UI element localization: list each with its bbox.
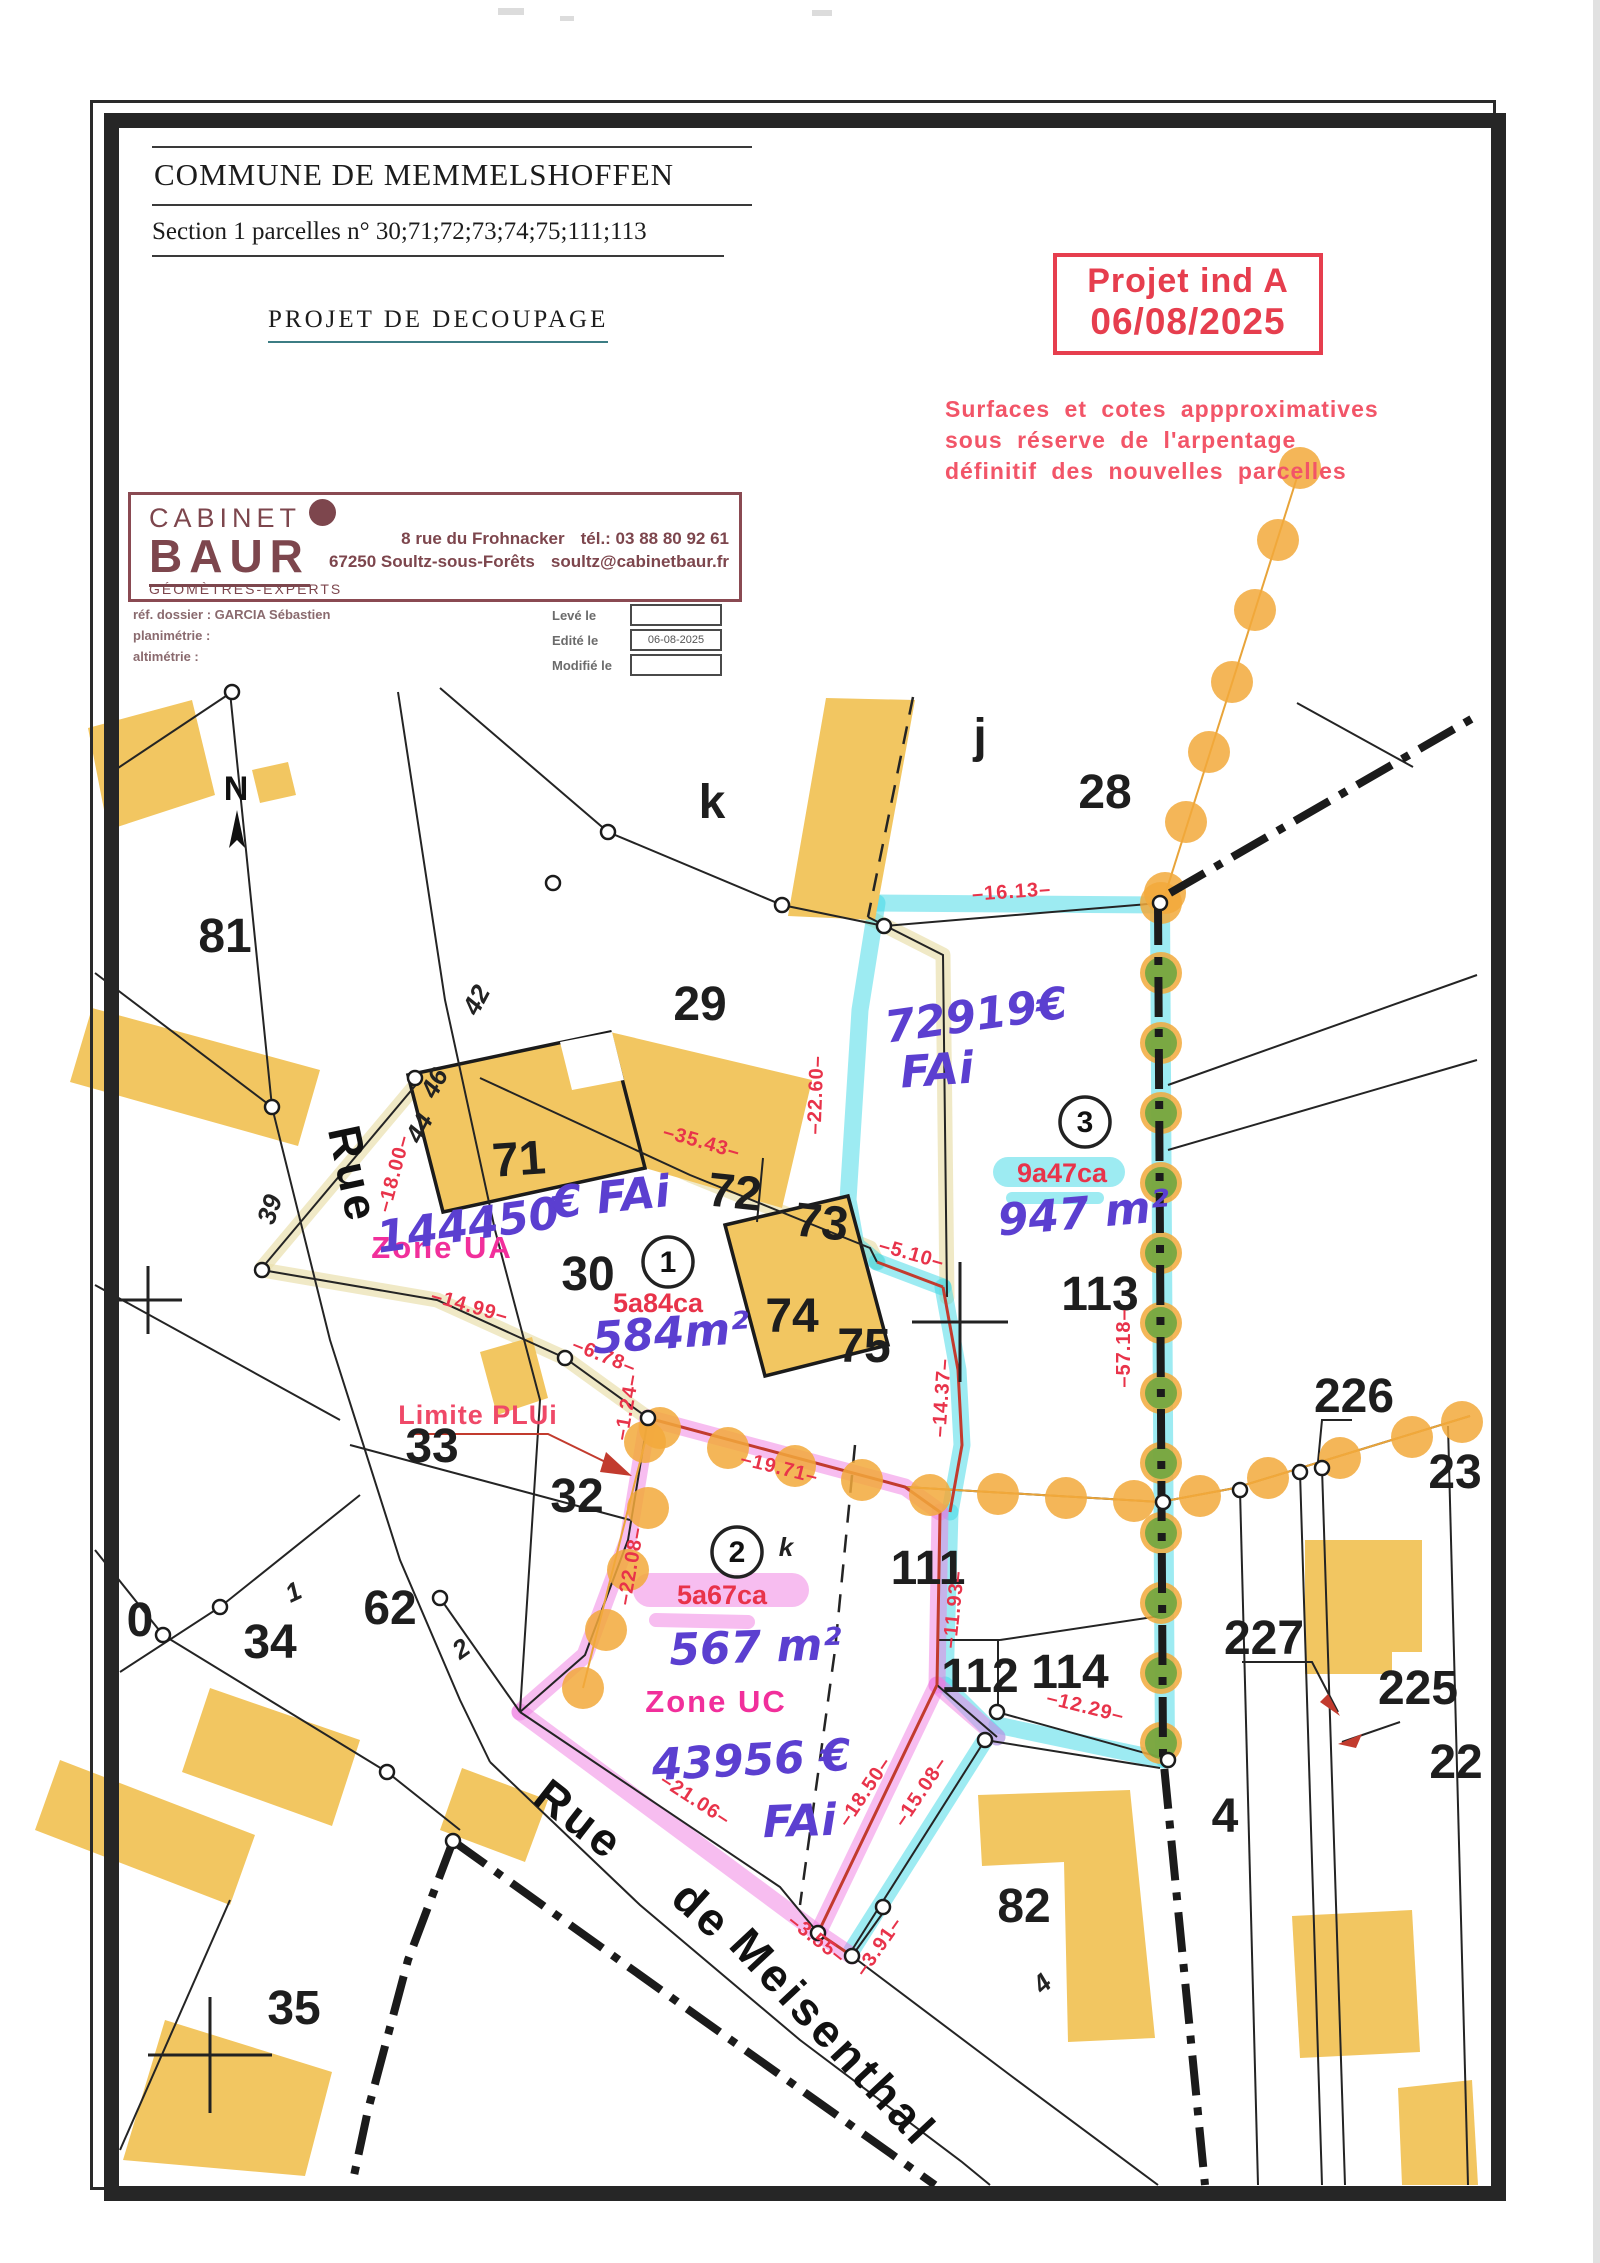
surveyor-firm-block: CABINET BAUR GÉOMÈTRES-EXPERTS 8 rue du … xyxy=(128,492,742,602)
firm-address-2: 67250 Soultz-sous-Forêts xyxy=(329,552,535,571)
survey-point-icon xyxy=(775,898,789,912)
street-label-2: de xyxy=(662,1870,743,1950)
orange-boundary-dot xyxy=(562,1667,604,1709)
parcel-label-227: 227 xyxy=(1224,1612,1304,1665)
limite-plui-label: Limite PLUi xyxy=(398,1400,558,1430)
parcel-label-74: 74 xyxy=(765,1290,819,1343)
parcel-label-4: 4 xyxy=(1212,1790,1239,1843)
survey-point-icon xyxy=(601,825,615,839)
parcel-label-81: 81 xyxy=(198,910,251,963)
orange-boundary-dot xyxy=(1441,1401,1483,1443)
survey-point-icon xyxy=(156,1628,170,1642)
orange-boundary-dot xyxy=(1211,661,1253,703)
stamp-project-label: Projet ind A xyxy=(1057,262,1319,301)
orange-boundary-dot xyxy=(1179,1475,1221,1517)
survey-point-icon xyxy=(1153,896,1167,910)
firm-logo-dot-icon xyxy=(309,499,336,526)
leve-le-label: Levé le xyxy=(552,608,630,623)
dimension-label-9: –57.18– xyxy=(1113,1308,1135,1387)
parcel-label-28: 28 xyxy=(1078,766,1131,819)
survey-point-icon xyxy=(978,1733,992,1747)
survey-point-icon xyxy=(1161,1753,1175,1767)
survey-point-icon xyxy=(1156,1495,1170,1509)
handwriting-note-3: FAi xyxy=(899,1042,977,1098)
lot-number-1: 1 xyxy=(660,1246,677,1279)
survey-point-icon xyxy=(446,1834,460,1848)
handwriting-note-7: 43956 € xyxy=(650,1730,853,1791)
handwriting-note-2: 72919€ xyxy=(881,978,1070,1054)
survey-point-icon xyxy=(877,919,891,933)
house-number-7: k xyxy=(779,1532,795,1562)
survey-point-icon xyxy=(255,1263,269,1277)
commune-title: COMMUNE DE MEMMELSHOFFEN xyxy=(152,146,752,206)
parcel-label-226: 226 xyxy=(1314,1370,1394,1423)
survey-point-icon xyxy=(1233,1483,1247,1497)
project-title: PROJET DE DECOUPAGE xyxy=(268,306,608,343)
parcel-label-225: 225 xyxy=(1378,1662,1458,1715)
modifie-le-value xyxy=(630,654,722,676)
north-label: N xyxy=(224,770,249,808)
orange-boundary-dot xyxy=(1247,1457,1289,1499)
handwriting-note-5: 584m² xyxy=(591,1303,751,1365)
survey-point-icon xyxy=(546,876,560,890)
parcel-label-71: 71 xyxy=(490,1131,547,1188)
lot-number-badge-1: 1 xyxy=(643,1237,693,1287)
parcel-label-30: 30 xyxy=(561,1248,614,1301)
orange-boundary-dot xyxy=(977,1473,1019,1515)
altimetrie: altimétrie : xyxy=(133,646,330,667)
survey-point-icon xyxy=(876,1900,890,1914)
lot-number-badge-3: 3 xyxy=(1060,1097,1110,1147)
parcel-label-82: 82 xyxy=(997,1880,1050,1933)
planimetrie: planimétrie : xyxy=(133,625,330,646)
house-number-6: 4 xyxy=(1026,1967,1058,2000)
parcel-label-72: 72 xyxy=(705,1163,764,1221)
section-parcelles-subtitle: Section 1 parcelles n° 30;71;72;73;74;75… xyxy=(152,218,724,257)
disclaimer-text: Surfaces et cotes appproximatives sous r… xyxy=(945,394,1379,487)
disclaimer-line-1: Surfaces et cotes appproximatives xyxy=(945,394,1379,425)
handwriting-note-4: 947 m² xyxy=(996,1181,1172,1247)
orange-boundary-dot xyxy=(585,1609,627,1651)
file-info-dates: Levé le Edité le06-08-2025 Modifié le xyxy=(552,604,722,679)
parcel-label-29: 29 xyxy=(673,978,726,1031)
orange-boundary-dot xyxy=(1257,519,1299,561)
parcel-label-75: 75 xyxy=(837,1320,890,1373)
survey-point-icon xyxy=(1315,1461,1329,1475)
survey-point-icon xyxy=(225,685,239,699)
parcel-label-112: 112 xyxy=(941,1650,1018,1703)
survey-point-icon xyxy=(990,1705,1004,1719)
handwriting-note-6: 567 m² xyxy=(669,1619,843,1676)
ref-dossier: réf. dossier : GARCIA Sébastien xyxy=(133,604,330,625)
scanned-cadastral-plan: 812928kj71727330747511333323462011111211… xyxy=(0,0,1600,2263)
stamp-date: 06/08/2025 xyxy=(1057,301,1319,343)
orange-boundary-dot xyxy=(1113,1480,1155,1522)
parcel-label-35: 35 xyxy=(267,1982,320,2035)
file-info-left: réf. dossier : GARCIA Sébastien planimét… xyxy=(133,604,330,667)
parcel-label-k: k xyxy=(699,776,726,829)
parcel-label-34: 34 xyxy=(243,1616,297,1669)
survey-point-icon xyxy=(433,1591,447,1605)
orange-boundary-dot xyxy=(1045,1477,1087,1519)
cadastral-map-svg: 812928kj71727330747511333323462011111211… xyxy=(0,0,1600,2263)
firm-name-main: BAUR xyxy=(149,529,310,587)
orange-boundary-dot xyxy=(1391,1416,1433,1458)
modifie-le-label: Modifié le xyxy=(552,658,630,673)
orange-boundary-dot xyxy=(1165,801,1207,843)
firm-contact: 8 rue du Frohnackertél.: 03 88 80 92 61 … xyxy=(313,527,729,573)
firm-email: soultz@cabinetbaur.fr xyxy=(551,552,729,571)
parcel-label-62: 62 xyxy=(363,1582,416,1635)
survey-point-icon xyxy=(1293,1465,1307,1479)
zone-label-1: Zone UC xyxy=(645,1684,786,1719)
handwriting-note-8: FAi xyxy=(762,1795,838,1849)
survey-cross-icon xyxy=(114,1266,182,1334)
parcel-label-32: 32 xyxy=(550,1470,603,1523)
firm-address-1: 8 rue du Frohnacker xyxy=(401,529,564,548)
orange-boundary-dot xyxy=(1188,731,1230,773)
edite-le-label: Edité le xyxy=(552,633,630,648)
green-boundary-dot xyxy=(1145,1237,1177,1269)
parcel-label-22: 22 xyxy=(1429,1736,1482,1789)
orange-boundary-dot xyxy=(1234,589,1276,631)
leve-le-value xyxy=(630,604,722,626)
project-index-stamp: Projet ind A 06/08/2025 xyxy=(1053,253,1323,355)
edite-le-value: 06-08-2025 xyxy=(630,629,722,651)
firm-tel: tél.: 03 88 80 92 61 xyxy=(581,529,729,548)
dimension-label-8: –14.37– xyxy=(928,1357,955,1438)
firm-subtitle: GÉOMÈTRES-EXPERTS xyxy=(149,581,342,597)
orange-boundary-dot xyxy=(627,1487,669,1529)
house-number-1: 42 xyxy=(456,979,497,1020)
parcel-label-0: 0 xyxy=(127,1594,154,1647)
lot-number-3: 3 xyxy=(1077,1106,1094,1139)
lot-number-2: 2 xyxy=(729,1536,746,1569)
orange-boundary-dot xyxy=(909,1474,951,1516)
orange-boundary-dot xyxy=(841,1459,883,1501)
house-number-5: 2 xyxy=(445,1632,475,1666)
area-label-9a47ca: 9a47ca xyxy=(1017,1158,1108,1188)
parcel-label-j: j xyxy=(972,710,986,763)
survey-point-icon xyxy=(213,1600,227,1614)
parcel-label-23: 23 xyxy=(1428,1446,1481,1499)
parcel-label-73: 73 xyxy=(792,1193,851,1251)
disclaimer-line-2: sous réserve de l'arpentage xyxy=(945,425,1379,456)
house-number-4: 1 xyxy=(280,1575,306,1608)
disclaimer-line-3: définitif des nouvelles parcelles xyxy=(945,456,1379,487)
survey-point-icon xyxy=(641,1411,655,1425)
area-label-5a67ca: 5a67ca xyxy=(677,1580,768,1610)
survey-point-icon xyxy=(380,1765,394,1779)
lot-number-badge-2: 2 xyxy=(712,1527,762,1577)
house-number-0: 39 xyxy=(251,1190,289,1227)
dimension-label-1: –22.60– xyxy=(804,1055,829,1135)
survey-point-icon xyxy=(265,1100,279,1114)
